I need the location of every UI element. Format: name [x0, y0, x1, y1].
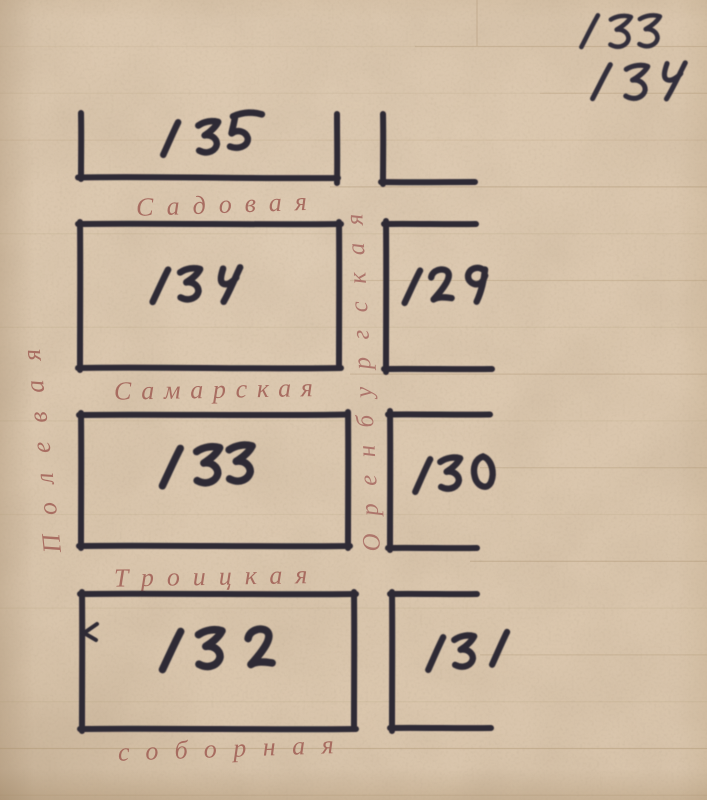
svg-text:Троицкая: Троицкая — [114, 560, 321, 593]
svg-text:Самарская: Самарская — [114, 373, 323, 406]
